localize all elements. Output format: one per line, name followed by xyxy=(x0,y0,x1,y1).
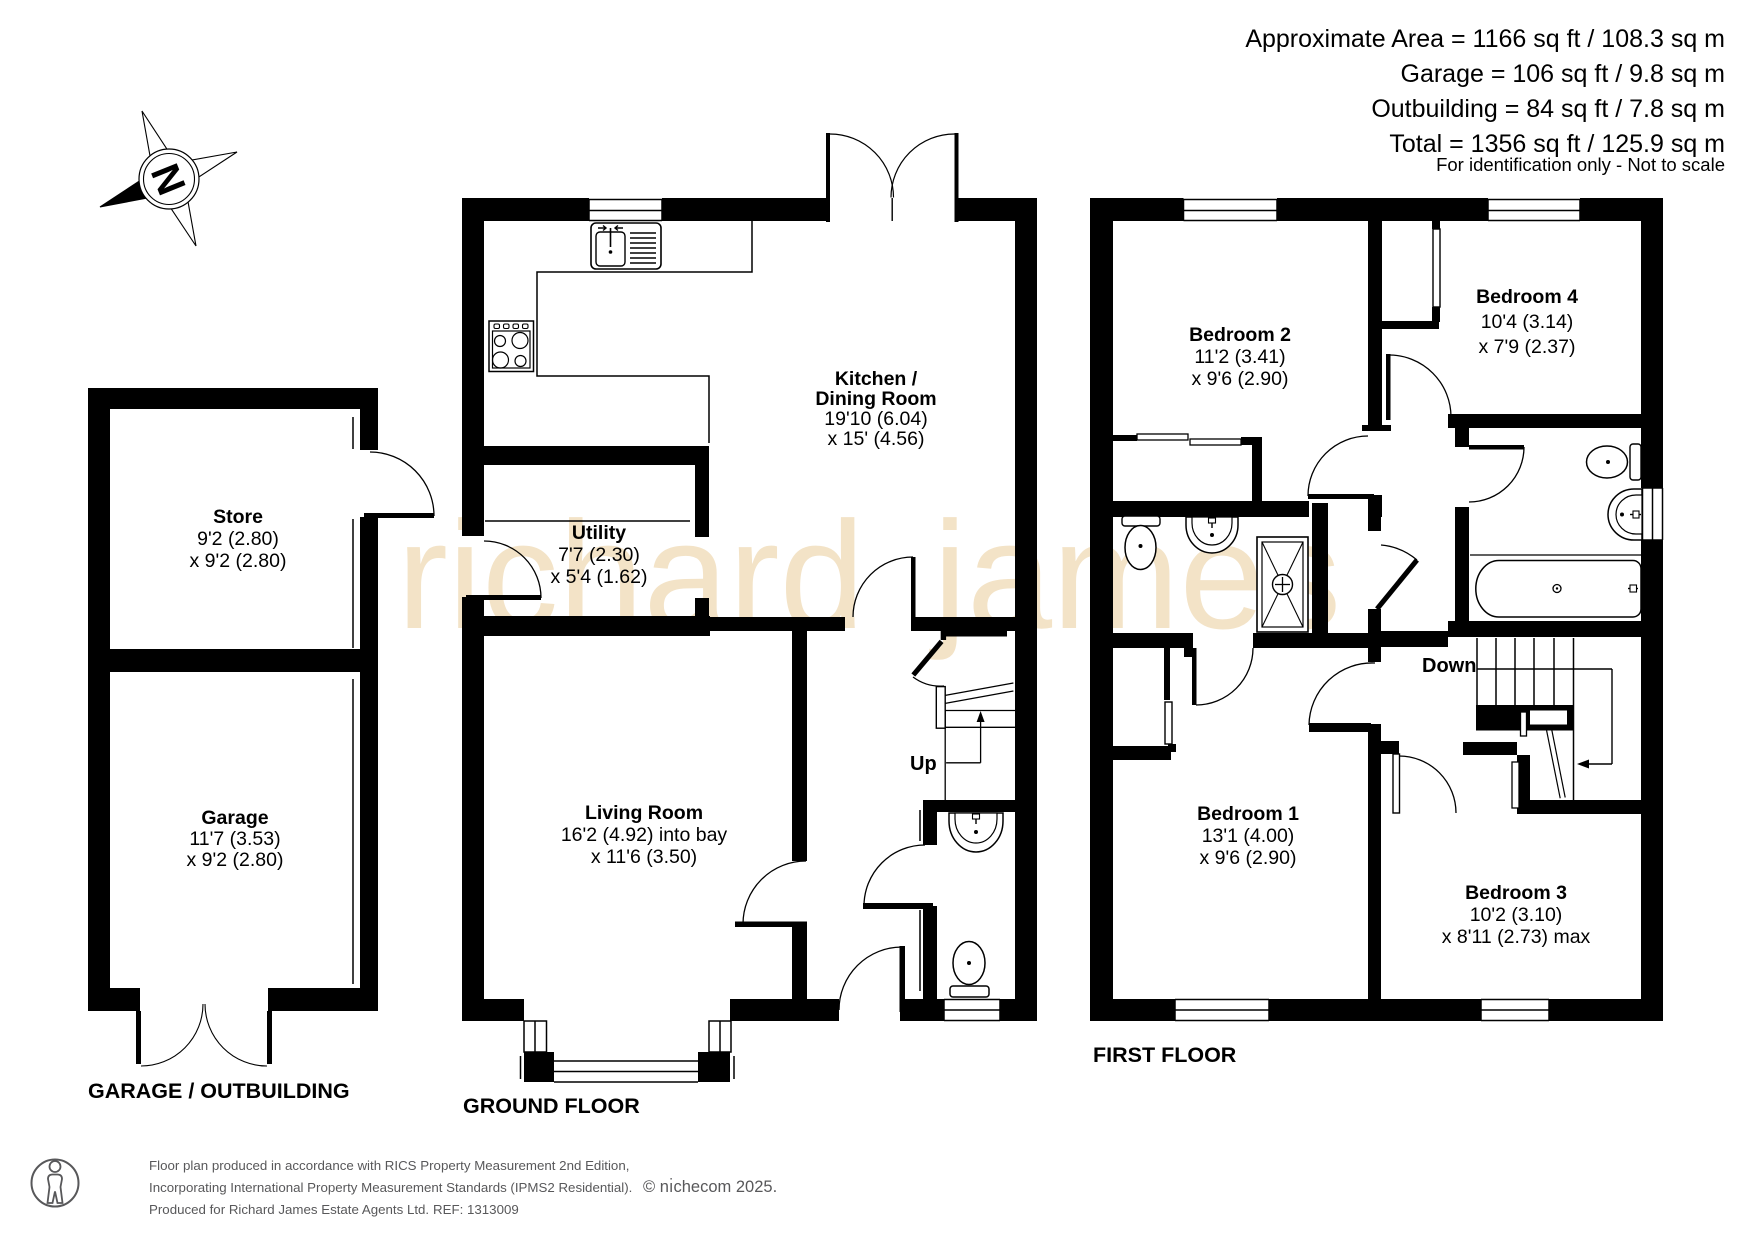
svg-text:Bedroom 3: Bedroom 3 xyxy=(1465,882,1567,904)
svg-text:GARAGE / OUTBUILDING: GARAGE / OUTBUILDING xyxy=(88,1079,350,1103)
svg-text:FIRST FLOOR: FIRST FLOOR xyxy=(1093,1043,1237,1067)
svg-text:16'2 (4.92) into bay: 16'2 (4.92) into bay xyxy=(561,824,728,846)
svg-text:9'2 (2.80): 9'2 (2.80) xyxy=(197,528,279,550)
svg-text:11'2 (3.41): 11'2 (3.41) xyxy=(1194,346,1285,368)
svg-text:x 9'6 (2.90): x 9'6 (2.90) xyxy=(1192,368,1289,390)
svg-text:x 8'11 (2.73) max: x 8'11 (2.73) max xyxy=(1442,926,1591,948)
svg-text:Outbuilding = 84 sq ft / 7.8 s: Outbuilding = 84 sq ft / 7.8 sq m xyxy=(1371,95,1725,123)
svg-text:Garage: Garage xyxy=(201,807,268,829)
svg-text:Produced for Richard James Est: Produced for Richard James Estate Agents… xyxy=(149,1202,429,1217)
svg-text:x 9'2 (2.80): x 9'2 (2.80) xyxy=(187,849,284,871)
svg-text:Utility: Utility xyxy=(572,522,626,544)
svg-text:x 9'6 (2.90): x 9'6 (2.90) xyxy=(1200,847,1297,869)
svg-text:19'10 (6.04): 19'10 (6.04) xyxy=(824,408,927,430)
svg-text:Bedroom 2: Bedroom 2 xyxy=(1189,324,1291,346)
svg-text:Kitchen /: Kitchen / xyxy=(835,368,918,390)
svg-text:x 11'6 (3.50): x 11'6 (3.50) xyxy=(591,846,697,868)
svg-text:Garage = 106 sq ft / 9.8 sq m: Garage = 106 sq ft / 9.8 sq m xyxy=(1401,60,1726,88)
svg-text:Approximate Area = 1166 sq ft: Approximate Area = 1166 sq ft / 108.3 sq… xyxy=(1245,25,1725,53)
svg-text:x 5'4 (1.62): x 5'4 (1.62) xyxy=(551,566,648,588)
svg-text:Incorporating International Pr: Incorporating International Property Mea… xyxy=(149,1180,632,1195)
svg-text:GROUND FLOOR: GROUND FLOOR xyxy=(463,1094,640,1118)
svg-text:11'7 (3.53): 11'7 (3.53) xyxy=(189,828,280,850)
svg-text:Bedroom 4: Bedroom 4 xyxy=(1476,286,1578,308)
svg-text:x 15' (4.56): x 15' (4.56) xyxy=(828,428,925,450)
svg-text:Living Room: Living Room xyxy=(585,802,703,824)
svg-text:10'2 (3.10): 10'2 (3.10) xyxy=(1470,904,1563,926)
svg-text:7'7 (2.30): 7'7 (2.30) xyxy=(558,544,640,566)
svg-text:13'1 (4.00): 13'1 (4.00) xyxy=(1202,825,1295,847)
svg-text:Floor plan produced in accorda: Floor plan produced in accordance with R… xyxy=(149,1158,629,1173)
svg-text:Store: Store xyxy=(213,506,263,528)
svg-text:REF: 1313009: REF: 1313009 xyxy=(433,1202,519,1217)
svg-text:10'4 (3.14): 10'4 (3.14) xyxy=(1481,311,1574,333)
svg-text:Bedroom 1: Bedroom 1 xyxy=(1197,803,1299,825)
svg-text:x 9'2 (2.80): x 9'2 (2.80) xyxy=(190,550,287,572)
svg-text:Down: Down xyxy=(1422,655,1476,677)
svg-text:Dining Room: Dining Room xyxy=(815,388,936,410)
svg-text:Up: Up xyxy=(910,753,937,775)
svg-text:x 7'9 (2.37): x 7'9 (2.37) xyxy=(1479,336,1576,358)
svg-text:For identification only - Not: For identification only - Not to scale xyxy=(1436,154,1725,175)
svg-text:© nı̇checom 2025.: © nı̇checom 2025. xyxy=(643,1178,777,1196)
